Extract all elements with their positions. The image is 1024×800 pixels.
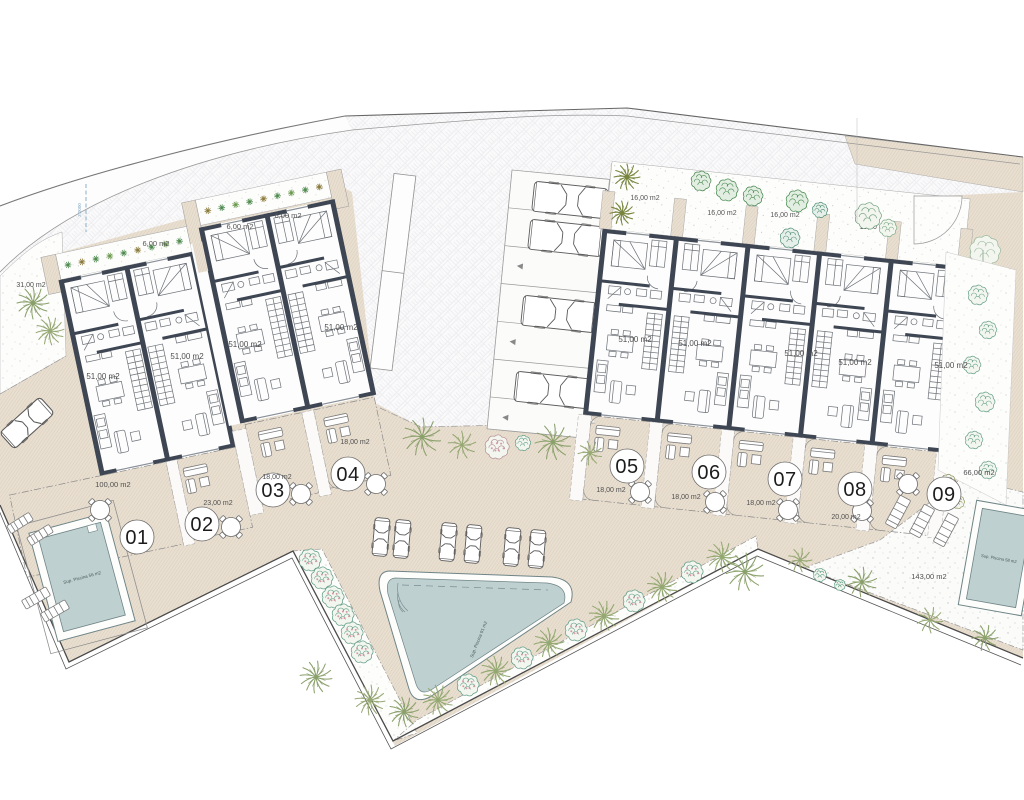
svg-text:100,00 m2: 100,00 m2: [95, 480, 130, 489]
svg-text:18,00 m2: 18,00 m2: [340, 439, 369, 446]
svg-text:143,00 m2: 143,00 m2: [911, 572, 946, 581]
svg-text:6,00 m2: 6,00 m2: [274, 211, 301, 220]
svg-text:51,00 m2: 51,00 m2: [170, 352, 204, 361]
svg-text:16,00 m2: 16,00 m2: [770, 212, 799, 219]
svg-text:01: 01: [125, 527, 148, 549]
svg-text:6,00 m2: 6,00 m2: [226, 222, 253, 231]
svg-text:18,00 m2: 18,00 m2: [671, 494, 700, 501]
svg-text:02: 02: [190, 514, 213, 536]
svg-text:51,00 m2: 51,00 m2: [678, 339, 712, 348]
svg-text:3.0000: 3.0000: [77, 203, 82, 217]
svg-text:51,00 m2: 51,00 m2: [618, 335, 652, 344]
svg-text:04: 04: [336, 464, 359, 486]
svg-text:08: 08: [843, 479, 866, 501]
svg-text:51,00 m2: 51,00 m2: [228, 340, 262, 349]
svg-text:51,00 m2: 51,00 m2: [784, 349, 818, 358]
svg-text:51,00 m2: 51,00 m2: [86, 372, 120, 381]
svg-text:16,00 m2: 16,00 m2: [707, 210, 736, 217]
svg-text:18,00 m2: 18,00 m2: [596, 487, 625, 494]
svg-text:20,00 m2: 20,00 m2: [831, 514, 860, 521]
svg-text:31,00 m2: 31,00 m2: [16, 282, 45, 289]
svg-text:07: 07: [773, 469, 796, 491]
svg-text:51,00 m2: 51,00 m2: [324, 323, 358, 332]
svg-text:06: 06: [697, 462, 720, 484]
svg-text:18,00 m2: 18,00 m2: [746, 500, 775, 507]
svg-text:05: 05: [615, 456, 638, 478]
svg-text:16,00 m2: 16,00 m2: [630, 195, 659, 202]
svg-text:51,00 m2: 51,00 m2: [934, 361, 968, 370]
svg-text:23,00 m2: 23,00 m2: [203, 500, 232, 507]
svg-text:6,00 m2: 6,00 m2: [142, 239, 169, 248]
svg-text:18,00 m2: 18,00 m2: [262, 474, 291, 481]
svg-text:09: 09: [932, 484, 955, 506]
svg-text:03: 03: [261, 480, 284, 502]
svg-text:66,00 m2: 66,00 m2: [963, 468, 994, 477]
svg-text:51,00 m2: 51,00 m2: [838, 358, 872, 367]
